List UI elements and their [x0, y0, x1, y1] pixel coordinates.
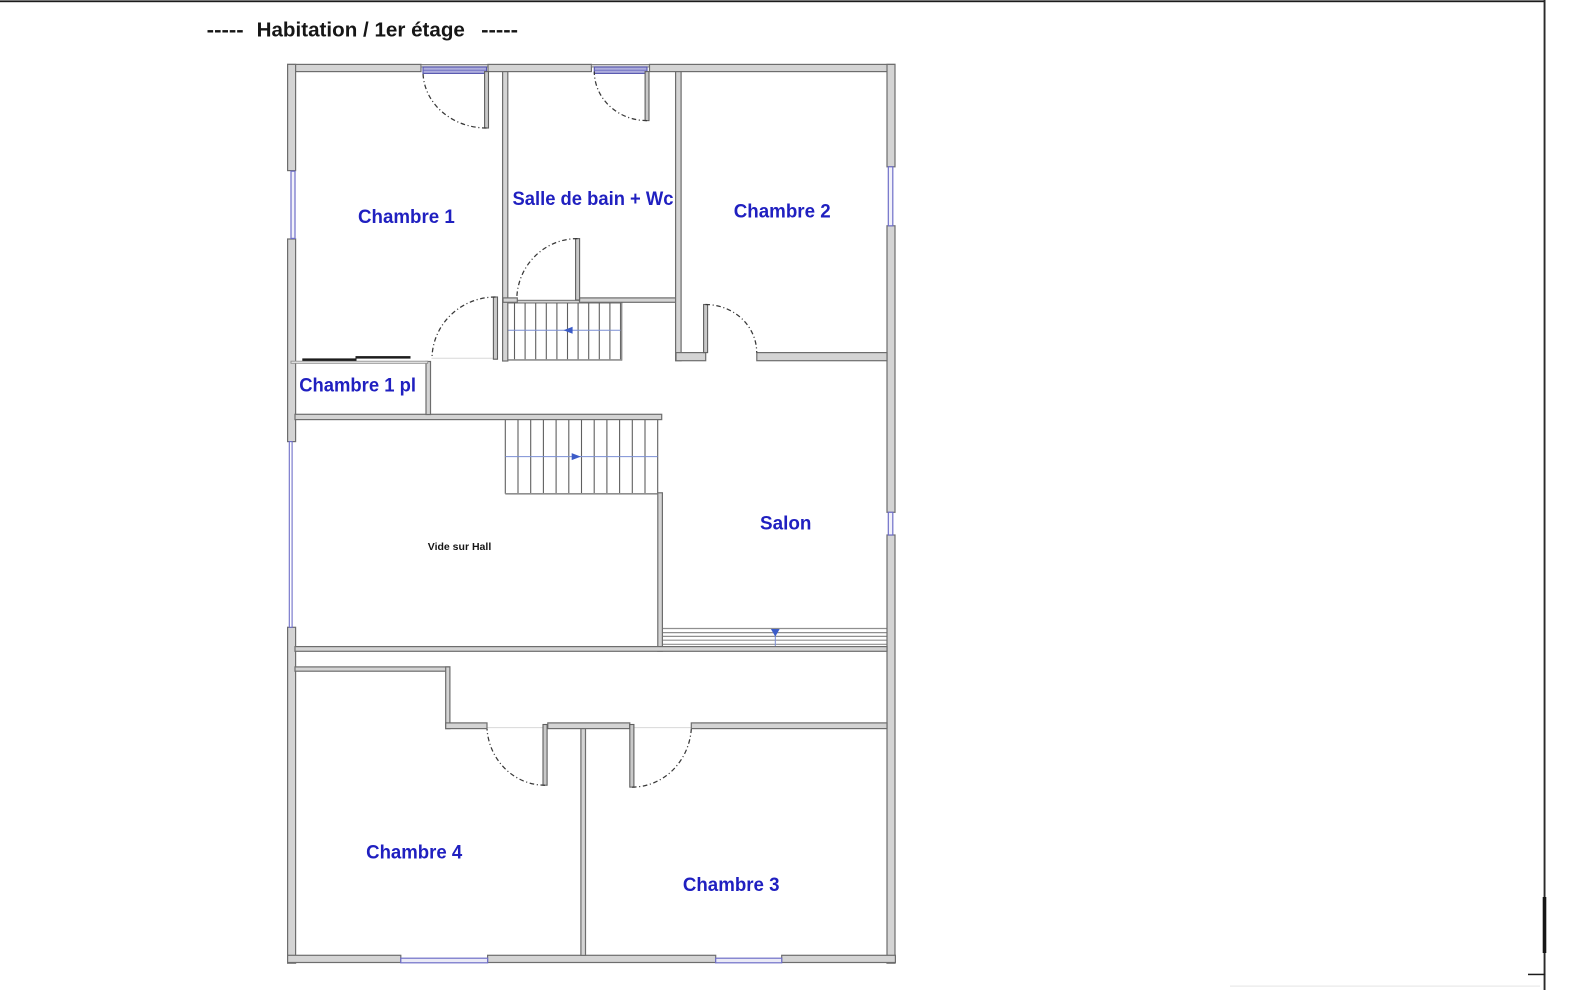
svg-text:Chambre 1: Chambre 1	[358, 207, 455, 228]
svg-text:Vide sur Hall: Vide sur Hall	[428, 541, 492, 553]
svg-text:Chambre 2: Chambre 2	[734, 202, 831, 223]
svg-text:Salon: Salon	[760, 513, 811, 534]
svg-text:Chambre 4: Chambre 4	[366, 842, 463, 863]
svg-text:Habitation / 1er étage: Habitation / 1er étage	[257, 18, 465, 41]
svg-text:-----: -----	[207, 18, 244, 41]
svg-text:Chambre 3: Chambre 3	[683, 875, 780, 896]
svg-text:Salle de bain + Wc: Salle de bain + Wc	[513, 189, 674, 210]
svg-text:Chambre 1 pl: Chambre 1 pl	[299, 375, 416, 396]
svg-text:-----: -----	[481, 18, 518, 41]
